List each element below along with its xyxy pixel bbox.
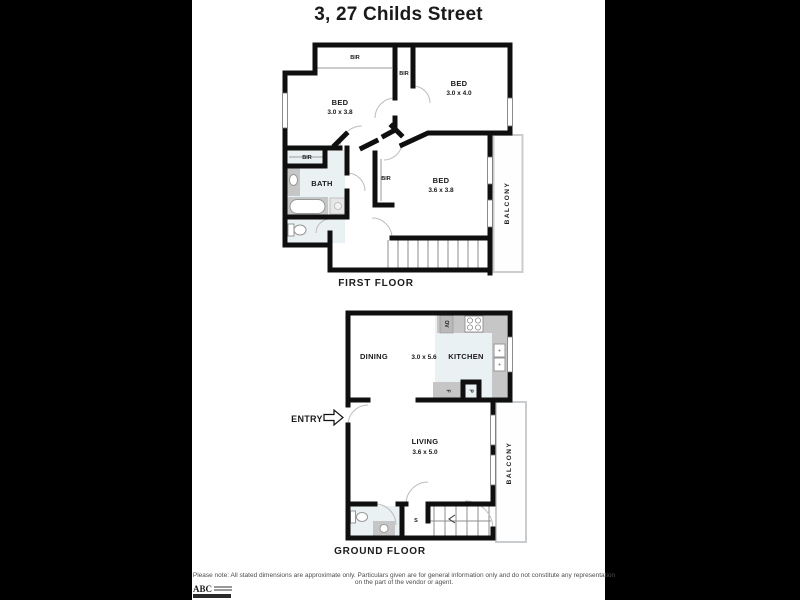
bed1-label: BED bbox=[332, 98, 349, 107]
bed2-label: BED bbox=[451, 79, 468, 88]
living-dims: 3.6 x 5.0 bbox=[412, 449, 438, 456]
first-floor-plan: BIR BIR BED 3.0 x 3.8 BED 3.0 x 4.0 BIR … bbox=[280, 38, 530, 283]
toilet-ground-floor bbox=[357, 513, 368, 522]
bathtub bbox=[290, 200, 325, 214]
disclaimer-text: Please note: All stated dimensions are a… bbox=[192, 572, 616, 586]
cooktop bbox=[465, 316, 483, 332]
caption-ground-floor: GROUND FLOOR bbox=[300, 546, 460, 557]
stairs-direction-chevron bbox=[449, 515, 455, 523]
staircase-first-floor bbox=[388, 240, 488, 268]
staircase-ground-floor bbox=[430, 506, 491, 536]
bir-label-left: BIR bbox=[302, 155, 312, 161]
page-title: 3, 27 Childs Street bbox=[192, 4, 605, 26]
kitchen-label: KITCHEN bbox=[448, 352, 483, 361]
wc-basin bbox=[380, 525, 388, 533]
bir-label-bed3: BIR bbox=[381, 176, 391, 182]
agency-logo-detail bbox=[214, 585, 232, 591]
ground-floor-plan: ENTRY DINING 3.0 x 5.6 KITCHEN OV F P LI… bbox=[280, 305, 536, 545]
bir-label-mid: BIR bbox=[399, 71, 409, 77]
bed2-dims: 3.0 x 4.0 bbox=[446, 90, 472, 97]
entry-label: ENTRY bbox=[291, 414, 323, 424]
vanity-basin bbox=[335, 203, 342, 210]
oven-label: OV bbox=[443, 320, 449, 328]
bath-label: BATH bbox=[311, 179, 332, 188]
kitchen-sink bbox=[494, 344, 505, 371]
toilet-cistern-ground-floor bbox=[351, 511, 356, 523]
letterbox-background: 3, 27 Childs Street BIR bbox=[0, 0, 800, 600]
bed1-dims: 3.0 x 3.8 bbox=[327, 109, 353, 116]
agency-logo-text: ABC bbox=[193, 585, 212, 593]
living-label: LIVING bbox=[412, 437, 439, 446]
entry-arrow-icon bbox=[324, 410, 343, 425]
agency-logo: ABC bbox=[193, 585, 233, 598]
bed3-dims: 3.6 x 3.8 bbox=[428, 187, 454, 194]
dining-label: DINING bbox=[360, 352, 388, 361]
bed3-label: BED bbox=[433, 176, 450, 185]
toilet-cistern-first-floor bbox=[288, 224, 294, 236]
balcony-label-ground-floor: BALCONY bbox=[506, 442, 513, 485]
toilet-first-floor bbox=[294, 225, 306, 235]
caption-first-floor: FIRST FLOOR bbox=[296, 278, 456, 289]
fridge-label: F bbox=[445, 389, 451, 392]
bir-label-top: BIR bbox=[350, 55, 360, 61]
bath-sink bbox=[290, 175, 298, 186]
agency-logo-bar bbox=[193, 594, 231, 598]
storage-label: S bbox=[414, 518, 418, 524]
dining-kitchen-dims: 3.0 x 5.6 bbox=[411, 354, 437, 361]
balcony-label-first-floor: BALCONY bbox=[504, 182, 511, 225]
